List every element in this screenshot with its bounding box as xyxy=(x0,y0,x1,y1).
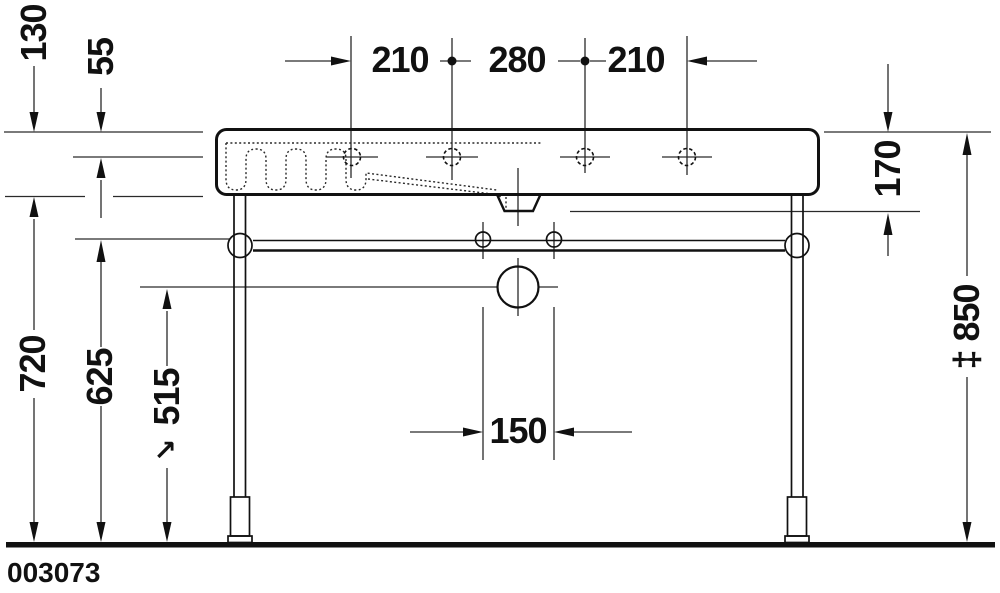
rail-bracket-right xyxy=(785,234,809,258)
arrow-150-left xyxy=(554,428,574,437)
towel-rail xyxy=(228,234,809,258)
fixing-holes xyxy=(476,232,562,247)
drain-trap xyxy=(497,195,541,212)
dim-label-210-right: 210 xyxy=(607,42,664,78)
dim-label-55: 55 xyxy=(83,38,119,76)
right-foot-sleeve xyxy=(788,497,807,536)
arrow-850-up xyxy=(963,133,972,155)
console-legs xyxy=(228,196,809,543)
arrow-130-up xyxy=(30,197,39,217)
right-leg xyxy=(792,196,804,497)
faucet-holes xyxy=(344,149,696,166)
arrow-850-down xyxy=(963,522,972,542)
arrow-top-right xyxy=(331,57,351,66)
dim-label-150: 150 xyxy=(489,413,546,449)
dim-label-130: 130 xyxy=(16,4,52,61)
dim-dot-right xyxy=(581,57,590,66)
dim-label-850: ‡ 850 xyxy=(949,284,985,369)
arrow-720-down xyxy=(30,522,39,542)
dim-dot-left xyxy=(448,57,457,66)
arrow-150-right xyxy=(463,428,483,437)
arrow-625-up xyxy=(97,240,106,262)
arrow-170-up xyxy=(884,213,893,235)
dim-label-625: 625 xyxy=(82,348,118,405)
variable-dimension-arrow-icon: ↗ xyxy=(153,437,176,465)
arrow-515-down xyxy=(163,522,172,542)
arrow-top-left xyxy=(687,57,707,66)
arrow-130-down xyxy=(30,112,39,132)
arrow-170-down xyxy=(884,112,893,132)
arrow-55-down xyxy=(97,112,106,132)
rail-bracket-left xyxy=(228,234,252,258)
left-foot-sleeve xyxy=(231,497,250,536)
product-code: 003073 xyxy=(7,559,100,587)
left-foot-plate xyxy=(228,536,252,543)
dim-label-170: 170 xyxy=(870,140,906,197)
right-foot-plate xyxy=(785,536,809,543)
dim-label-515: 515 xyxy=(149,368,185,425)
arrow-515-up xyxy=(163,289,172,309)
arrow-625-down xyxy=(97,522,106,542)
washbasin-dimension-drawing: 130 55 210 280 210 170 ‡ 850 720 625 515… xyxy=(0,0,1000,593)
dim-label-280: 280 xyxy=(488,42,545,78)
dim-label-720: 720 xyxy=(15,335,51,392)
floor-line xyxy=(6,542,995,548)
left-leg xyxy=(234,196,246,497)
basin-hidden-contour xyxy=(226,143,542,210)
drawing-canvas xyxy=(0,0,1000,593)
arrow-55-up xyxy=(97,158,106,178)
dim-label-210-left: 210 xyxy=(371,42,428,78)
